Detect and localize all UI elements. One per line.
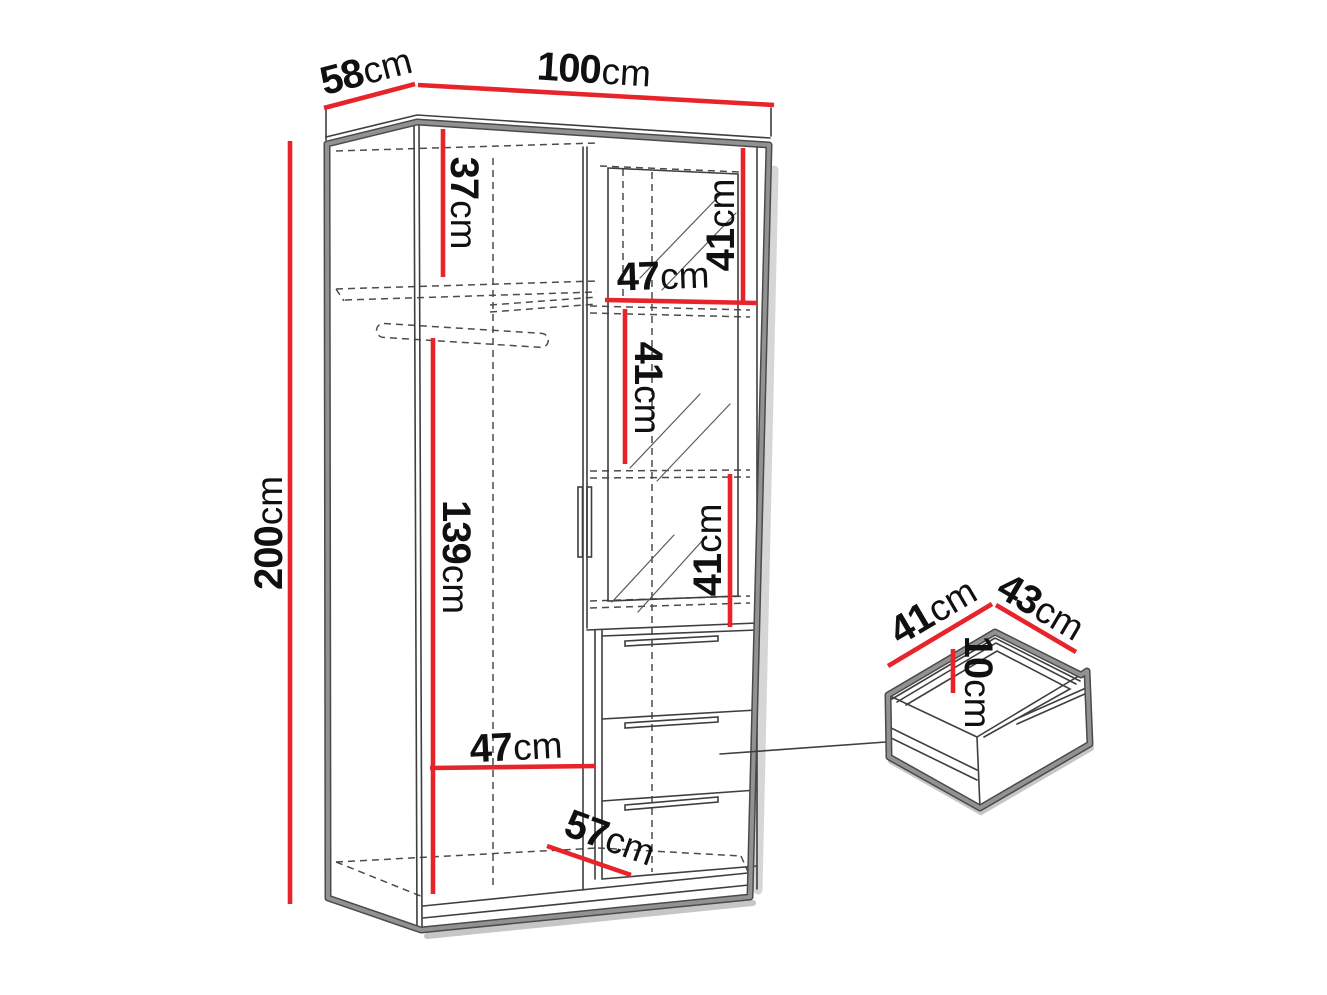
dimension-line-47cm-shelf-width [605,300,757,303]
dimension-label-200cm: 200cm [247,476,291,590]
dimension-label-37cm: 37cm [442,157,486,250]
dimension-label-41cm-middle: 41cm [626,342,670,435]
diagram-canvas: 58cm 100cm 200cm 37cm 41cm 47cm 41cm 41c… [0,0,1327,995]
dimension-label-47cm-interior: 47cm [468,723,563,772]
dimension-label-100cm: 100cm [536,44,653,95]
dimension-label-58cm: 58cm [316,38,417,104]
dimension-label-139cm: 139cm [434,500,478,614]
dimension-label-41cm-lower: 41cm [686,504,730,597]
dimension-label-10cm-drawer: 10cm [956,636,1000,729]
wardrobe-dimension-diagram: 58cm 100cm 200cm 37cm 41cm 47cm 41cm 41c… [0,0,1327,995]
dimension-label-47cm-shelf: 47cm [616,252,710,299]
